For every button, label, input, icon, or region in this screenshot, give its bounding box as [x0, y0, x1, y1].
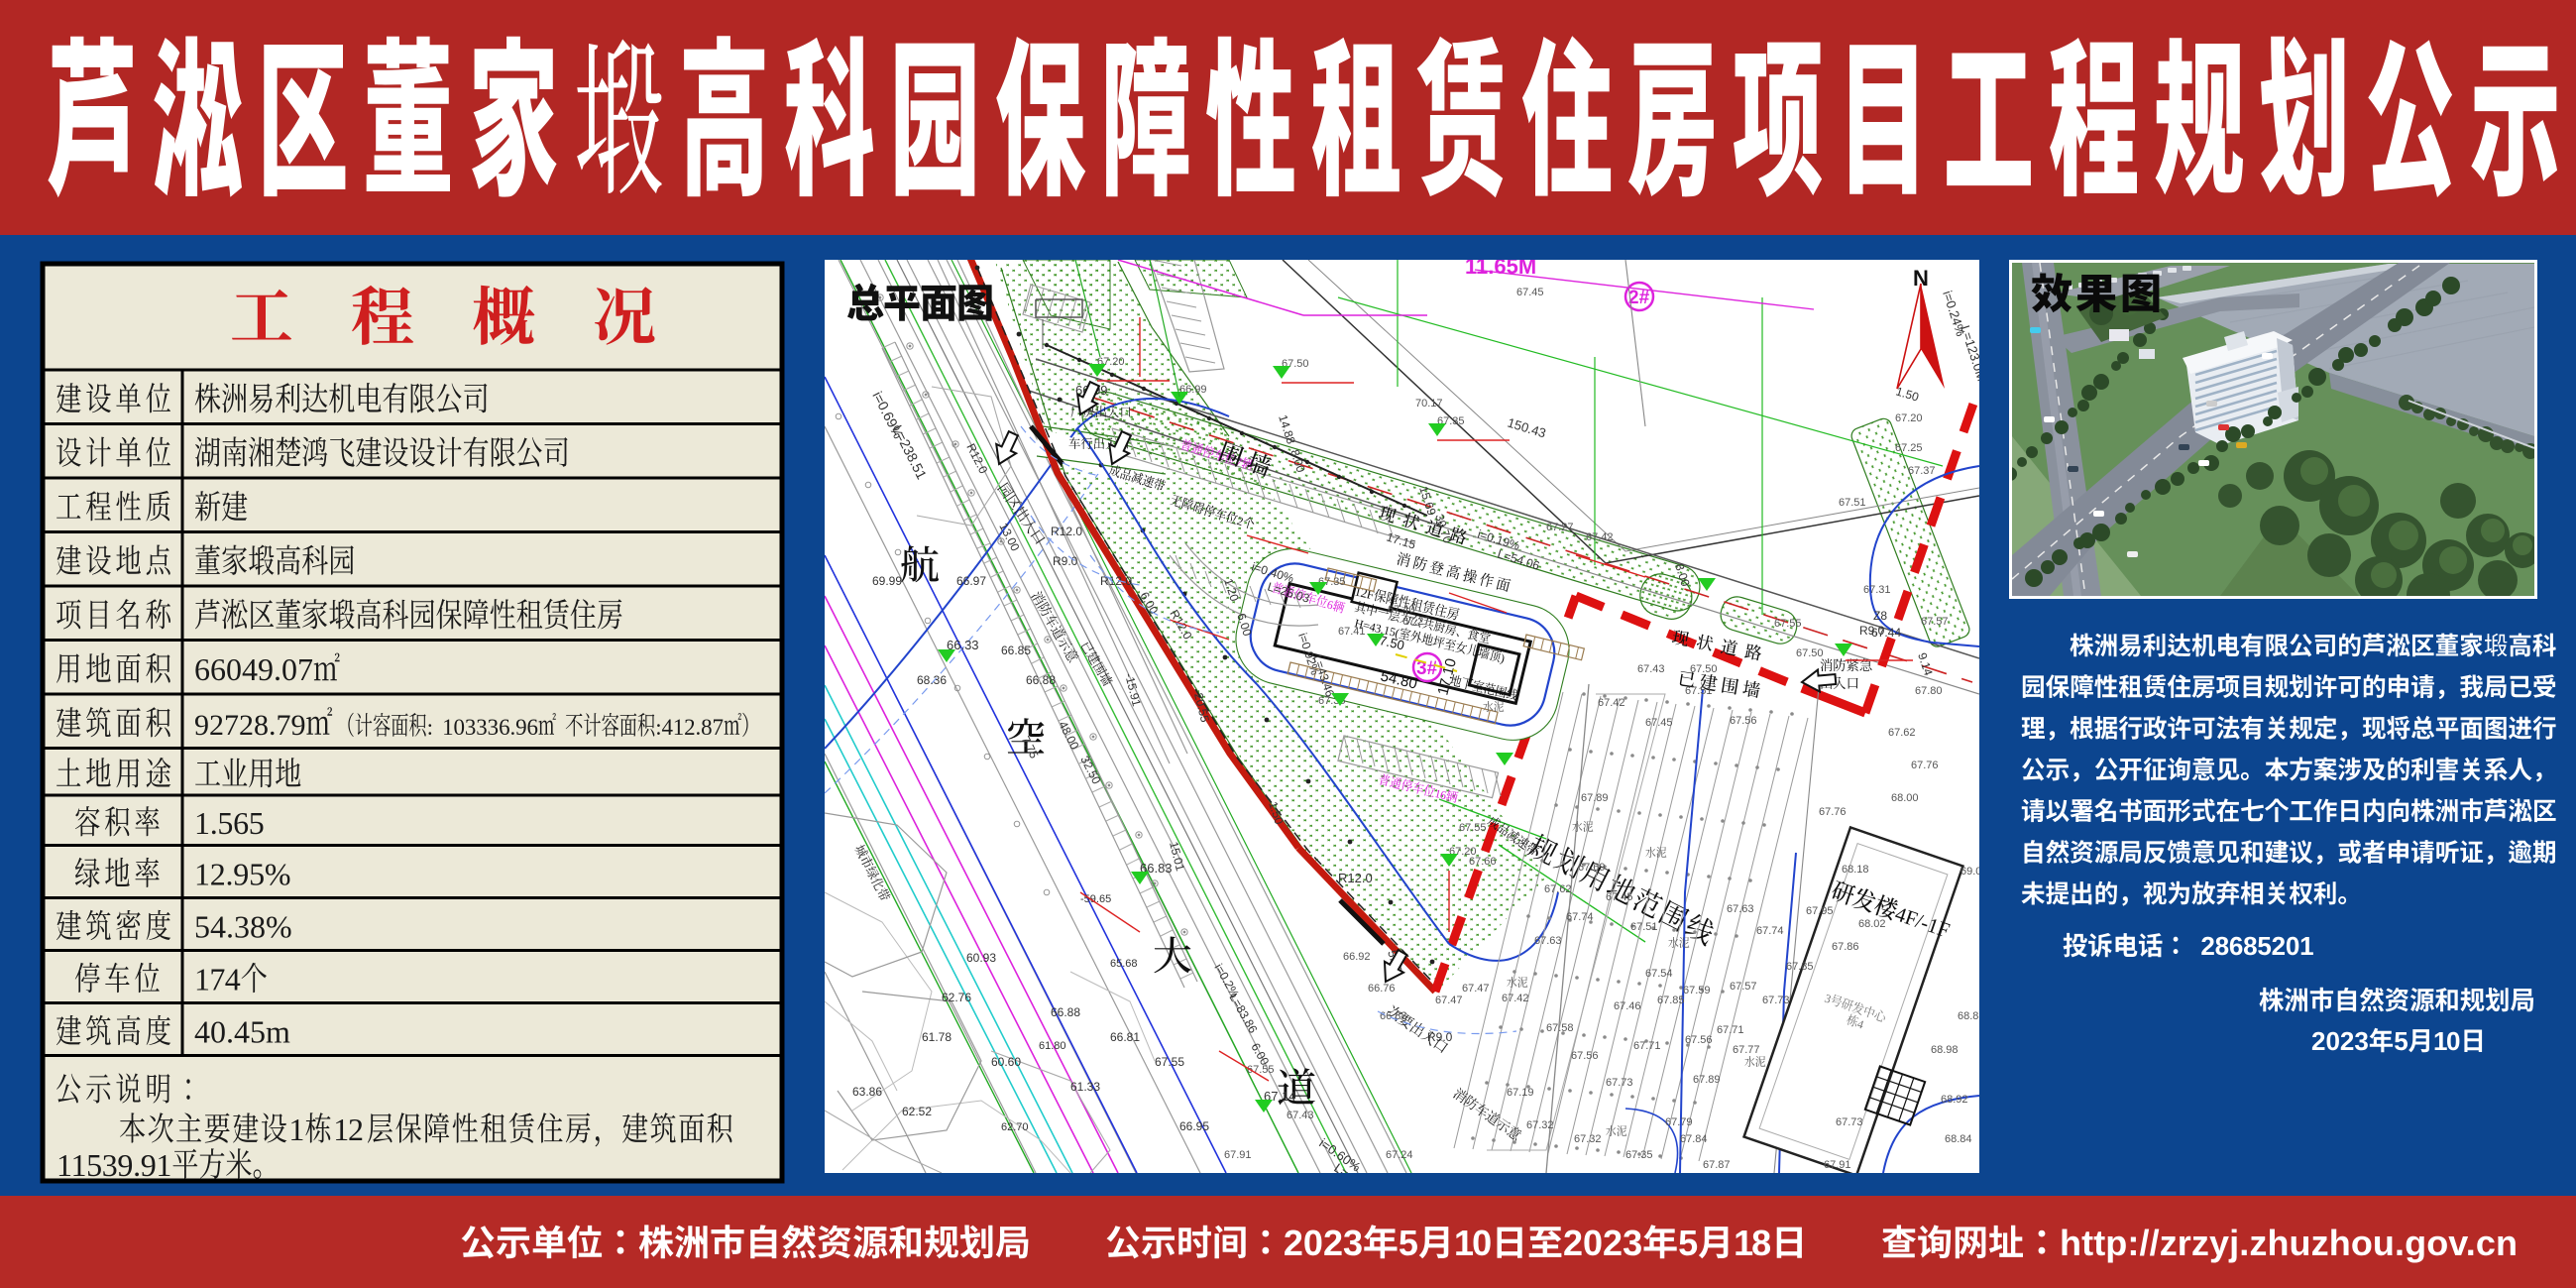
- svg-text:12.95%: 12.95%: [194, 857, 291, 892]
- svg-text:67.79: 67.79: [1665, 1116, 1693, 1128]
- svg-text:R12.0: R12.0: [1051, 525, 1082, 538]
- svg-text:67.89: 67.89: [1581, 792, 1609, 804]
- svg-text:10: 10: [2433, 1026, 2461, 1056]
- svg-text:174: 174: [194, 962, 241, 997]
- svg-text:Z8: Z8: [1873, 609, 1887, 623]
- svg-text:67.46: 67.46: [1614, 1000, 1641, 1012]
- svg-text:67.27: 67.27: [1546, 522, 1574, 533]
- svg-text:67.56: 67.56: [1571, 1050, 1599, 1062]
- svg-text:67.20: 67.20: [1895, 412, 1923, 424]
- svg-text:67.62: 67.62: [1888, 727, 1916, 739]
- svg-text:65.68: 65.68: [1110, 958, 1138, 970]
- svg-text:67.69: 67.69: [1578, 862, 1606, 874]
- svg-text:1: 1: [288, 1112, 304, 1147]
- svg-text:62.70: 62.70: [1001, 1121, 1029, 1133]
- svg-text:67.63: 67.63: [1534, 935, 1562, 947]
- svg-text:2#: 2#: [1628, 288, 1650, 308]
- svg-text:67.80: 67.80: [1915, 685, 1943, 697]
- svg-text:67.24: 67.24: [1386, 1149, 1413, 1161]
- svg-text:12: 12: [333, 1112, 364, 1147]
- svg-text:67.43: 67.43: [1287, 1110, 1314, 1121]
- svg-text:67.73: 67.73: [1606, 1077, 1633, 1089]
- svg-text:68.02: 68.02: [1858, 918, 1886, 930]
- svg-text:68.36: 68.36: [917, 673, 947, 687]
- svg-text:67.55: 67.55: [1155, 1055, 1184, 1069]
- svg-text:67.55: 67.55: [1459, 822, 1487, 834]
- svg-text:67.73: 67.73: [1762, 995, 1790, 1006]
- svg-text:67.51: 67.51: [1630, 921, 1658, 933]
- svg-text:2023: 2023: [1563, 1223, 1642, 1263]
- svg-text:67.59: 67.59: [1683, 985, 1711, 996]
- svg-text:67.45: 67.45: [1516, 287, 1544, 298]
- svg-text:67.19: 67.19: [1507, 1087, 1534, 1099]
- svg-text:66.81: 66.81: [1110, 1030, 1140, 1044]
- svg-text:67.71: 67.71: [1717, 1024, 1744, 1036]
- svg-text:67.76: 67.76: [1819, 806, 1847, 818]
- svg-text:67.84: 67.84: [1680, 1133, 1708, 1145]
- svg-text:67.47: 67.47: [1435, 995, 1463, 1006]
- svg-text:60.60: 60.60: [991, 1055, 1021, 1069]
- svg-text:5: 5: [1399, 1223, 1418, 1263]
- svg-text:67.73: 67.73: [1836, 1116, 1863, 1128]
- svg-text:67.41: 67.41: [1338, 626, 1366, 638]
- svg-text:66.92: 66.92: [1343, 951, 1371, 963]
- svg-text:66.76: 66.76: [1368, 983, 1396, 995]
- svg-text:62.76: 62.76: [942, 991, 971, 1004]
- svg-text:67.77: 67.77: [1733, 1044, 1760, 1056]
- svg-text:67.35: 67.35: [1625, 1149, 1653, 1161]
- svg-text:1.565: 1.565: [194, 805, 265, 841]
- svg-text:5: 5: [2394, 1026, 2408, 1056]
- svg-text:67.57: 67.57: [1921, 616, 1949, 628]
- svg-text:66.88: 66.88: [1051, 1005, 1080, 1019]
- svg-text:66.95: 66.95: [1179, 1119, 1209, 1133]
- svg-text:61.80: 61.80: [1039, 1040, 1066, 1052]
- svg-text:http://zrzyj.zhuzhou.gov.cn: http://zrzyj.zhuzhou.gov.cn: [2060, 1223, 2518, 1263]
- svg-text:67.42: 67.42: [1598, 697, 1625, 709]
- svg-text:67.51: 67.51: [1839, 497, 1866, 509]
- svg-text:69.99: 69.99: [872, 574, 902, 588]
- svg-text:62.52: 62.52: [902, 1105, 932, 1118]
- svg-text:68.92: 68.92: [1941, 1094, 1968, 1106]
- svg-text:66.97: 66.97: [956, 574, 986, 588]
- svg-text:67.95: 67.95: [1806, 905, 1834, 917]
- svg-text:60.93: 60.93: [966, 951, 996, 965]
- svg-text:54.38%: 54.38%: [194, 909, 292, 945]
- svg-text:67.32: 67.32: [1574, 1133, 1602, 1145]
- svg-text:68.84: 68.84: [1945, 1133, 1972, 1145]
- svg-text::: :: [427, 715, 433, 740]
- svg-text:66.85: 66.85: [1001, 644, 1031, 657]
- svg-text:67.58: 67.58: [1546, 1022, 1574, 1034]
- svg-text:67.50: 67.50: [1796, 647, 1824, 659]
- svg-text:66.88: 66.88: [1026, 673, 1056, 687]
- svg-text:67.42: 67.42: [1502, 993, 1529, 1004]
- svg-text:2023: 2023: [1284, 1223, 1363, 1263]
- svg-text:67.43: 67.43: [1637, 663, 1665, 675]
- svg-text:68.98: 68.98: [1931, 1044, 1959, 1056]
- svg-text:67.62: 67.62: [1544, 883, 1572, 895]
- svg-text:67.57: 67.57: [1730, 981, 1757, 993]
- svg-text:40.45m: 40.45m: [194, 1014, 290, 1050]
- svg-text:N: N: [1913, 266, 1929, 291]
- svg-text:67.45: 67.45: [1645, 717, 1673, 729]
- svg-text::412.87: :412.87: [655, 715, 724, 740]
- svg-text:67.54: 67.54: [1645, 968, 1673, 980]
- svg-text:67.76: 67.76: [1911, 760, 1939, 771]
- svg-text:67.89: 67.89: [1693, 1074, 1721, 1086]
- svg-text:67.74: 67.74: [1756, 925, 1784, 937]
- svg-text:61.33: 61.33: [1070, 1080, 1100, 1094]
- svg-text:61.78: 61.78: [922, 1030, 952, 1044]
- svg-text:66049.07: 66049.07: [194, 651, 313, 687]
- svg-text:70.17: 70.17: [1415, 398, 1443, 410]
- svg-text:10: 10: [1454, 1223, 1492, 1263]
- svg-text:67.66: 67.66: [1469, 856, 1497, 868]
- svg-text:67.85: 67.85: [1786, 961, 1814, 973]
- svg-text:67.63: 67.63: [1727, 903, 1754, 915]
- svg-text:67.91: 67.91: [1224, 1149, 1252, 1161]
- svg-text:67.44: 67.44: [1871, 626, 1901, 640]
- svg-text:67.37: 67.37: [1908, 465, 1936, 477]
- svg-text:67.51: 67.51: [1685, 685, 1713, 697]
- svg-text:67.40: 67.40: [1388, 604, 1415, 616]
- svg-text:67.71: 67.71: [1633, 1040, 1661, 1052]
- svg-text:67.50: 67.50: [1690, 663, 1718, 675]
- svg-text:67.56: 67.56: [1685, 1034, 1713, 1046]
- svg-text:67.56: 67.56: [1730, 715, 1757, 727]
- svg-text:63.86: 63.86: [852, 1085, 882, 1099]
- svg-text:67.45: 67.45: [1606, 891, 1633, 903]
- svg-text:67.86: 67.86: [1832, 941, 1859, 953]
- svg-text:67.74: 67.74: [1566, 911, 1594, 923]
- svg-text:103336.96: 103336.96: [442, 715, 538, 740]
- svg-text:67.87: 67.87: [1703, 1159, 1731, 1171]
- svg-text:66.88: 66.88: [1380, 1010, 1407, 1022]
- svg-text:18: 18: [1734, 1223, 1771, 1263]
- svg-text:2023: 2023: [2311, 1026, 2369, 1056]
- svg-text:68.18: 68.18: [1842, 864, 1869, 876]
- svg-text:67.91: 67.91: [1824, 1159, 1851, 1171]
- svg-text:R9.0: R9.0: [1053, 554, 1078, 568]
- svg-text:67.55: 67.55: [1774, 618, 1802, 630]
- svg-text:67.27: 67.27: [1402, 616, 1430, 628]
- svg-text:67.47: 67.47: [1462, 983, 1490, 995]
- svg-text:28685201: 28685201: [2200, 931, 2313, 961]
- svg-text:92728.79: 92728.79: [194, 709, 306, 742]
- svg-text:67.25: 67.25: [1895, 442, 1923, 454]
- svg-text:67.85: 67.85: [1657, 995, 1685, 1006]
- svg-text:5: 5: [1678, 1223, 1698, 1263]
- svg-text:67.42: 67.42: [1586, 531, 1614, 543]
- svg-text:68.00: 68.00: [1891, 792, 1919, 804]
- svg-text:67.32: 67.32: [1526, 1119, 1554, 1131]
- svg-text:R12.0: R12.0: [1338, 871, 1373, 885]
- svg-text:67.31: 67.31: [1863, 584, 1891, 596]
- svg-text:11539.91: 11539.91: [56, 1147, 171, 1183]
